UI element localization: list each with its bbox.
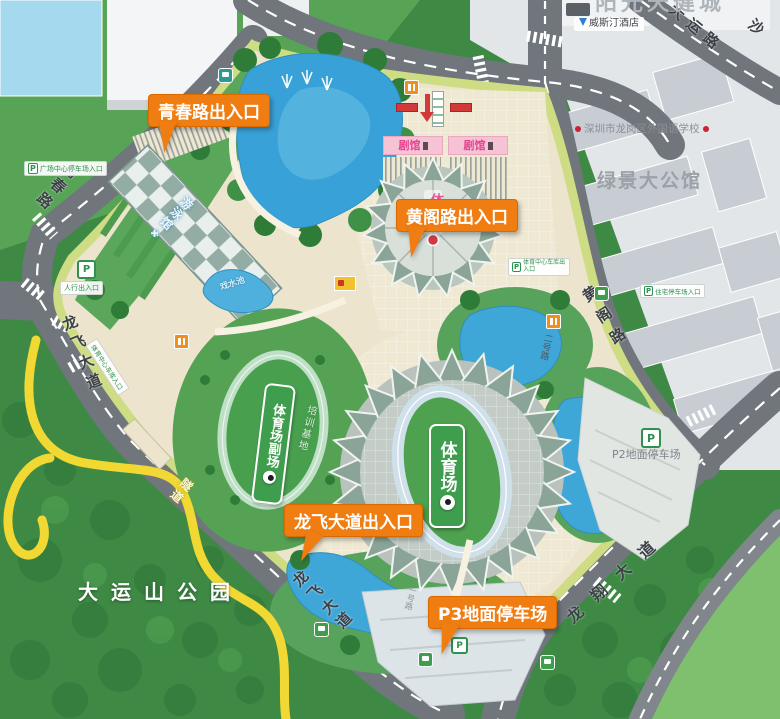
- callout-longfei-gate: 龙飞大道出入口: [284, 504, 423, 537]
- construction-badge: [566, 3, 590, 16]
- map-canvas: [0, 0, 780, 719]
- restroom-icon: [546, 314, 561, 329]
- callout-pointer: [155, 120, 176, 154]
- p2-parking-badge: P: [641, 428, 661, 448]
- school-label: 深圳市龙岗区外国语学校: [572, 124, 712, 135]
- huangge-parking-sign: P 体育中心车库出入口: [508, 258, 570, 276]
- bus-stop-icon: [418, 652, 433, 667]
- gate-bar-icon: [450, 103, 472, 112]
- bus-stop-icon: [314, 622, 329, 637]
- bus-stop-icon: [594, 286, 609, 301]
- gym-center-marker: [428, 235, 439, 246]
- callout-huangge-gate: 黄阁路出入口: [396, 199, 518, 232]
- west-entrance-sign: 人行出入口: [60, 281, 103, 295]
- estate-parking-sign: P 住宅停车场入口: [640, 284, 705, 298]
- westin-hotel-label: 威斯汀酒店: [574, 17, 644, 31]
- p2-parking-label: P2地面停车场: [612, 449, 681, 461]
- stadium-label: 体育场: [429, 424, 465, 528]
- landmark-mansion: 绿景大公馆: [597, 172, 702, 192]
- callout-p3-parking: P3地面停车场: [428, 596, 557, 629]
- bus-stop-icon: [540, 655, 555, 670]
- landmark-tianjian-city: 阳光天健城: [595, 0, 725, 15]
- gate-bar-icon: [396, 103, 418, 112]
- west-parking-badge: P: [77, 260, 96, 279]
- soccer-ball-icon: [262, 470, 276, 484]
- northwest-pool: [0, 0, 102, 96]
- transit-hub-icon: [334, 276, 356, 291]
- venue-map: 大运路 沙 青春路 龙飞大道 龙飞大道 黄阁路 龙翔大道 二号路 一号路 隧道 …: [0, 0, 780, 719]
- figure-icon: [423, 142, 428, 150]
- park-name: 大运山公园: [78, 582, 243, 603]
- restroom-icon: [404, 80, 419, 95]
- callout-qingchun-gate: 青春路出入口: [148, 94, 270, 127]
- soccer-ball-icon: [440, 495, 455, 510]
- entrance-arrow-icon: [420, 94, 434, 122]
- figure-icon: [488, 142, 493, 150]
- red-dot-icon: [575, 126, 581, 132]
- restroom-icon: [174, 334, 189, 349]
- plaza-parking-sign: P 广场中心停车场入口: [24, 161, 107, 176]
- parking-badge-icon: P: [512, 262, 521, 272]
- metro-station-icon: [218, 68, 233, 83]
- parking-badge-icon: P: [644, 286, 653, 296]
- theater-banner-right: 剧馆: [448, 136, 508, 155]
- parking-badge-icon: P: [28, 163, 38, 174]
- theater-banner-left: 剧馆: [383, 136, 443, 155]
- location-pin-icon: [579, 18, 587, 26]
- red-dot-icon: [703, 126, 709, 132]
